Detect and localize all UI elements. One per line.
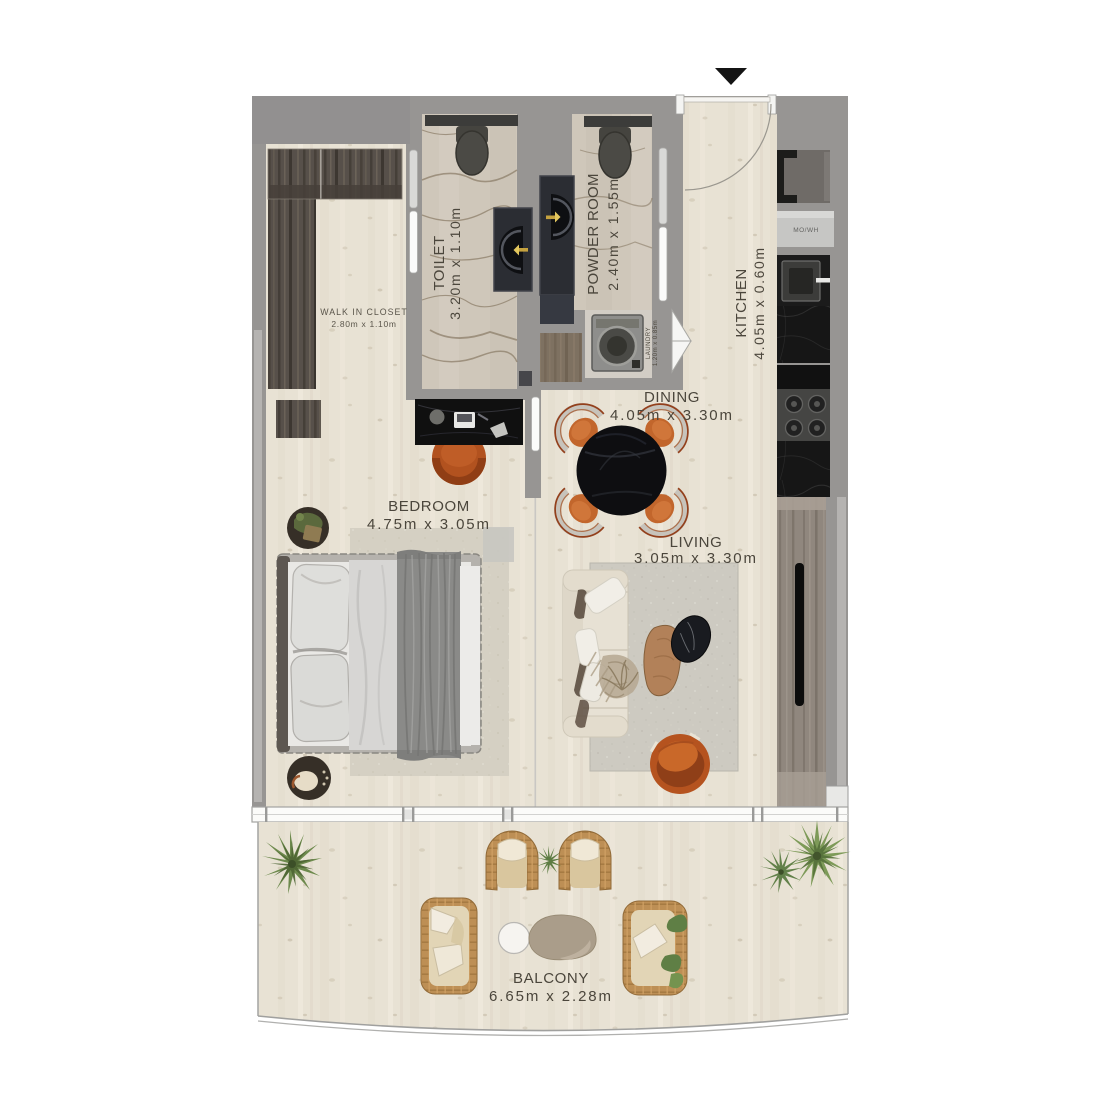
svg-text:MO/WH: MO/WH bbox=[793, 227, 819, 234]
svg-text:3.05m x 3.30m: 3.05m x 3.30m bbox=[634, 550, 758, 567]
svg-text:BEDROOM: BEDROOM bbox=[388, 498, 470, 515]
svg-text:4.05m x 3.30m: 4.05m x 3.30m bbox=[610, 407, 734, 424]
svg-text:3.20m x 1.10m: 3.20m x 1.10m bbox=[447, 206, 463, 319]
svg-text:DINING: DINING bbox=[644, 389, 700, 406]
svg-text:1.20m x 0.85m: 1.20m x 0.85m bbox=[653, 320, 659, 366]
svg-text:6.65m x 2.28m: 6.65m x 2.28m bbox=[489, 988, 613, 1005]
svg-text:4.05m x 0.60m: 4.05m x 0.60m bbox=[751, 246, 767, 359]
svg-text:2.40m x 1.55m: 2.40m x 1.55m bbox=[605, 177, 621, 290]
svg-text:WALK IN CLOSET: WALK IN CLOSET bbox=[320, 307, 408, 317]
svg-text:4.75m x 3.05m: 4.75m x 3.05m bbox=[367, 516, 491, 533]
svg-text:LAUNDRY: LAUNDRY bbox=[646, 327, 652, 359]
svg-text:LIVING: LIVING bbox=[670, 534, 723, 551]
svg-text:KITCHEN: KITCHEN bbox=[733, 268, 750, 337]
svg-text:2.80m x 1.10m: 2.80m x 1.10m bbox=[331, 319, 396, 329]
svg-text:POWDER ROOM: POWDER ROOM bbox=[585, 173, 602, 295]
svg-text:TOILET: TOILET bbox=[431, 235, 448, 290]
svg-text:BALCONY: BALCONY bbox=[513, 970, 589, 987]
